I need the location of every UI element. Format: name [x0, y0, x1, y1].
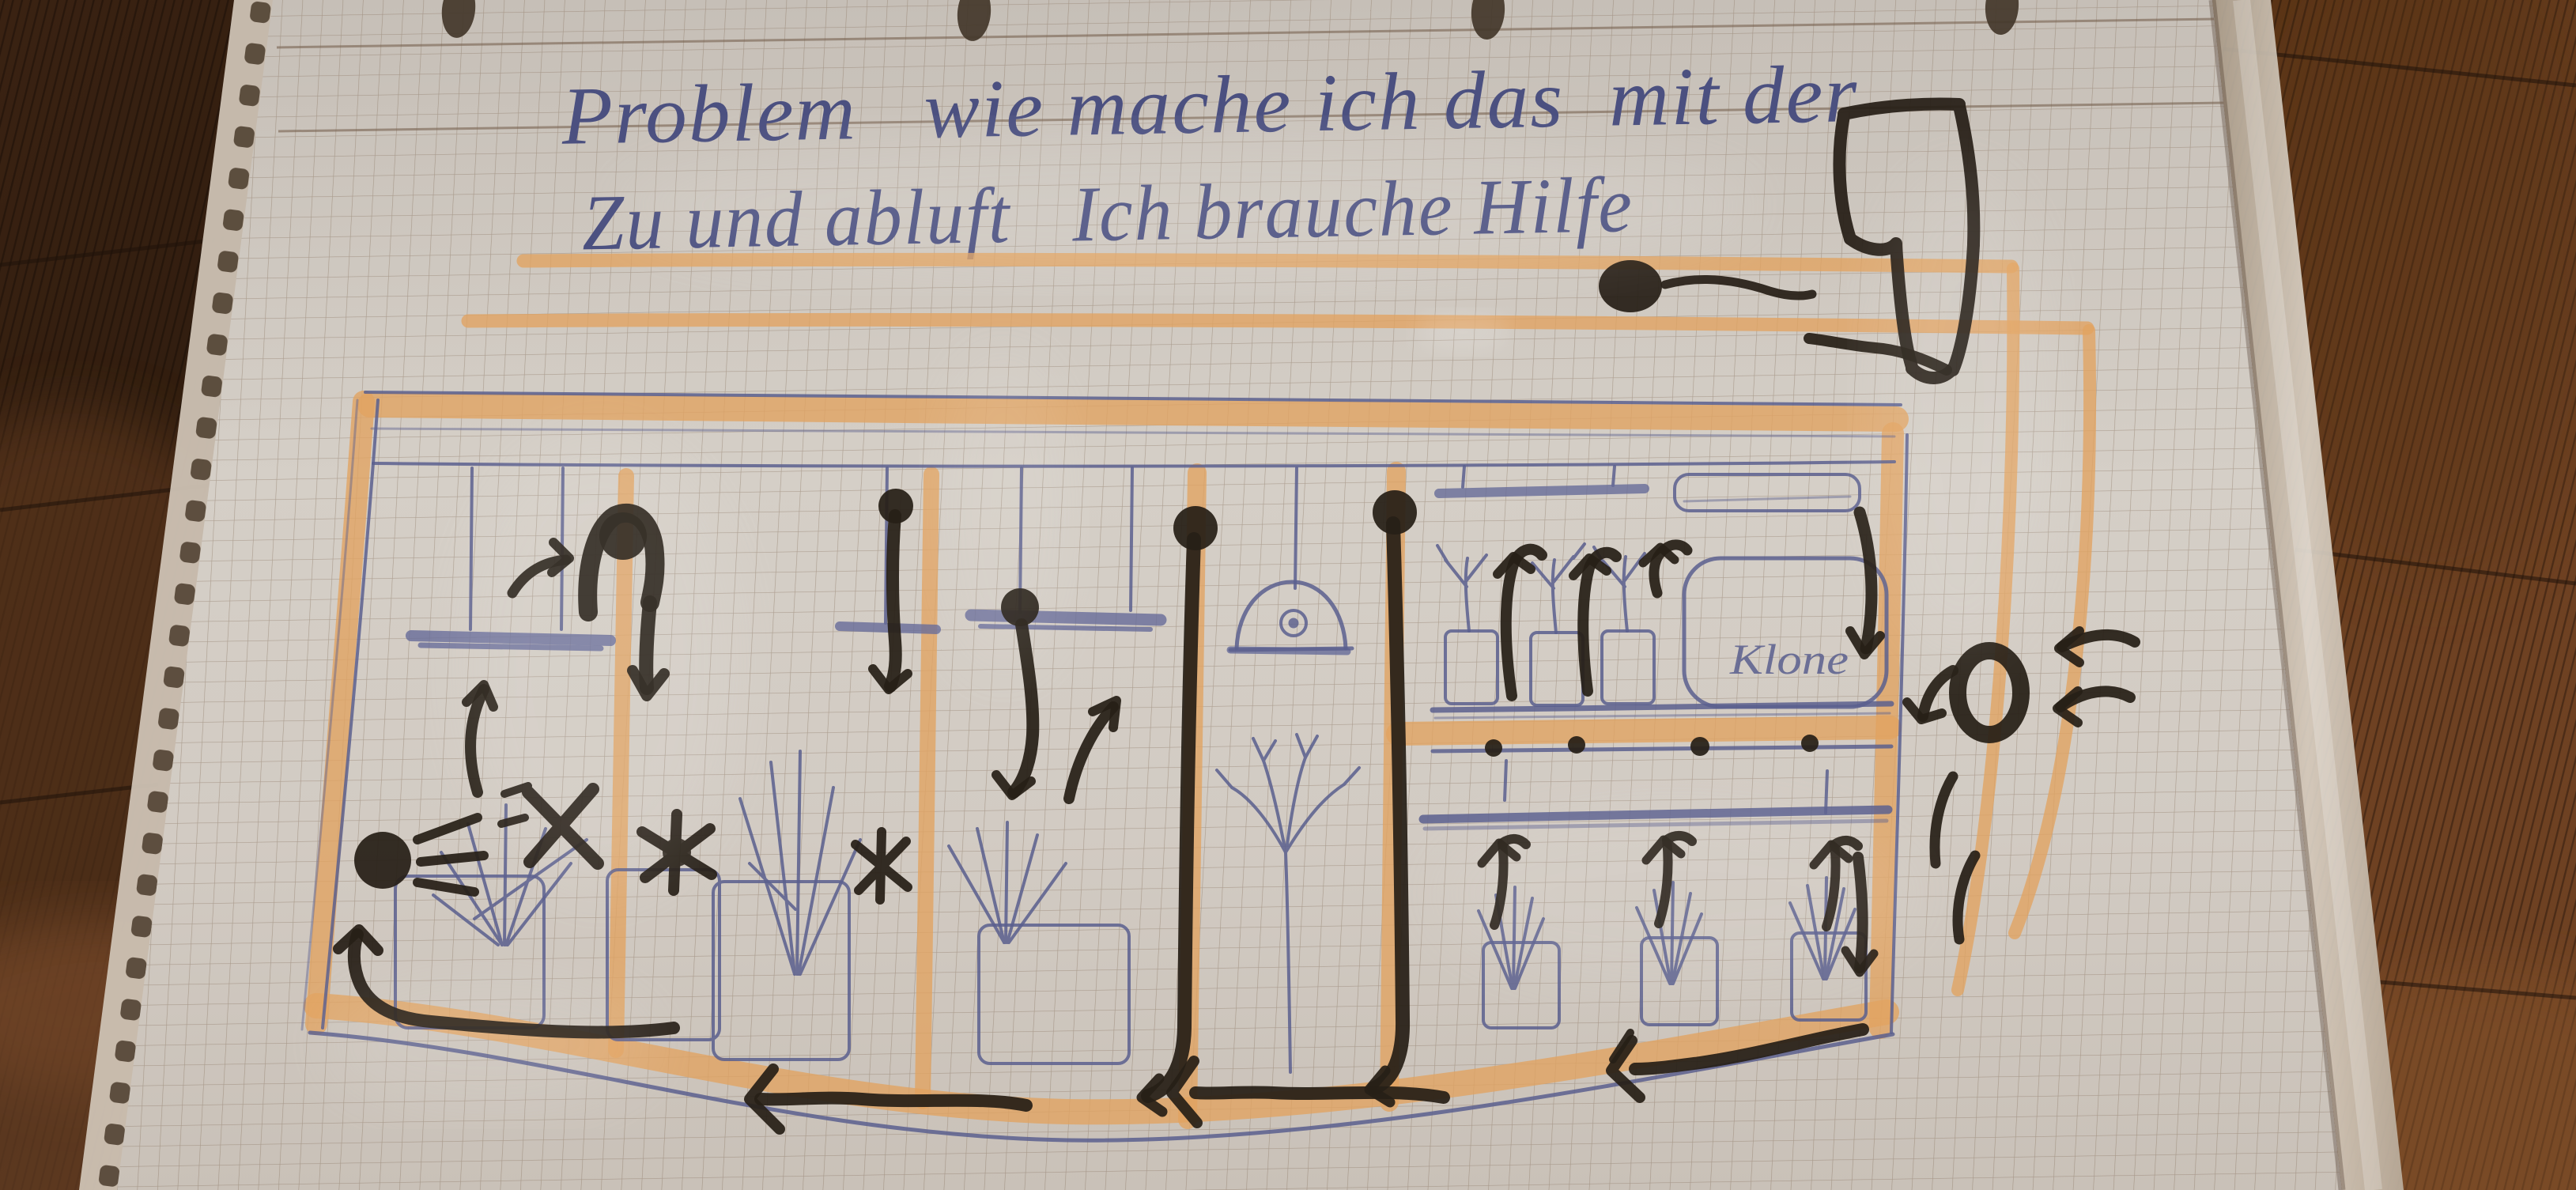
divider-2 [923, 474, 931, 1101]
lamp-bar-clone-shelf [1439, 489, 1645, 493]
top-beam [370, 405, 1896, 419]
clone-box-label: Klone [1729, 636, 1849, 683]
exhaust-fan-dot-icon [1599, 260, 1662, 312]
sketch-photo: Problem wie mache ich das mit der Zu und… [0, 0, 2576, 1190]
hanger-cord [1505, 761, 1506, 800]
clone-shelf-board [1398, 727, 1890, 734]
